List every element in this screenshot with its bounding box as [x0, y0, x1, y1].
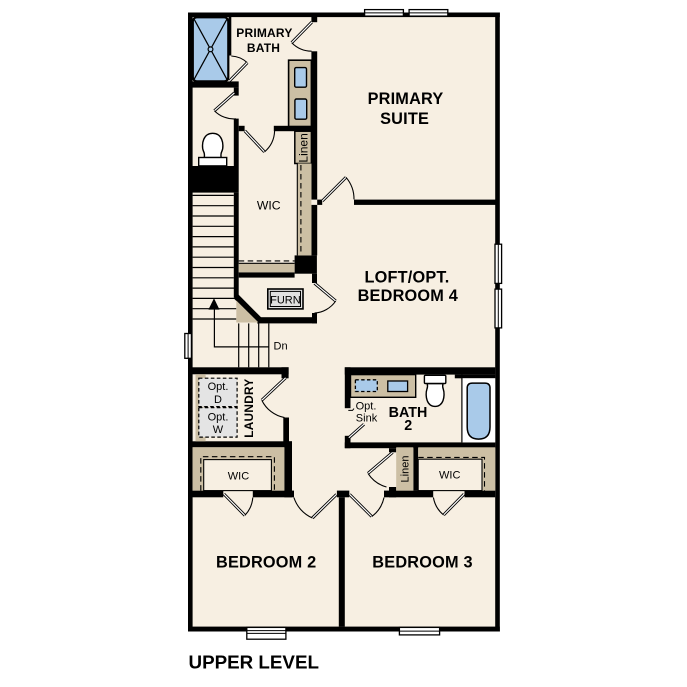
svg-text:UPPER LEVEL: UPPER LEVEL: [189, 651, 319, 672]
svg-text:BEDROOM 3: BEDROOM 3: [372, 553, 472, 571]
svg-text:LAUNDRY: LAUNDRY: [242, 378, 256, 437]
svg-text:Sink: Sink: [356, 413, 378, 425]
svg-text:Opt.: Opt.: [208, 411, 229, 423]
svg-text:BATH: BATH: [247, 41, 280, 55]
svg-text:WIC: WIC: [257, 198, 281, 212]
svg-text:Opt.: Opt.: [208, 381, 229, 393]
svg-text:BEDROOM 4: BEDROOM 4: [358, 287, 458, 305]
svg-text:W: W: [213, 424, 224, 436]
svg-text:WIC: WIC: [439, 470, 460, 482]
svg-text:Dn: Dn: [274, 341, 288, 353]
svg-text:FURN: FURN: [270, 294, 301, 306]
svg-text:BEDROOM 2: BEDROOM 2: [216, 553, 316, 571]
svg-text:SUITE: SUITE: [380, 110, 429, 128]
svg-text:PRIMARY: PRIMARY: [368, 90, 444, 108]
svg-text:Linen: Linen: [297, 133, 311, 162]
svg-text:LOFT/OPT.: LOFT/OPT.: [364, 268, 449, 286]
svg-text:2: 2: [404, 418, 412, 434]
svg-text:Opt.: Opt.: [356, 401, 377, 413]
svg-text:PRIMARY: PRIMARY: [236, 26, 292, 40]
svg-text:WIC: WIC: [228, 470, 249, 482]
svg-text:D: D: [214, 394, 222, 406]
svg-text:Linen: Linen: [399, 456, 411, 483]
